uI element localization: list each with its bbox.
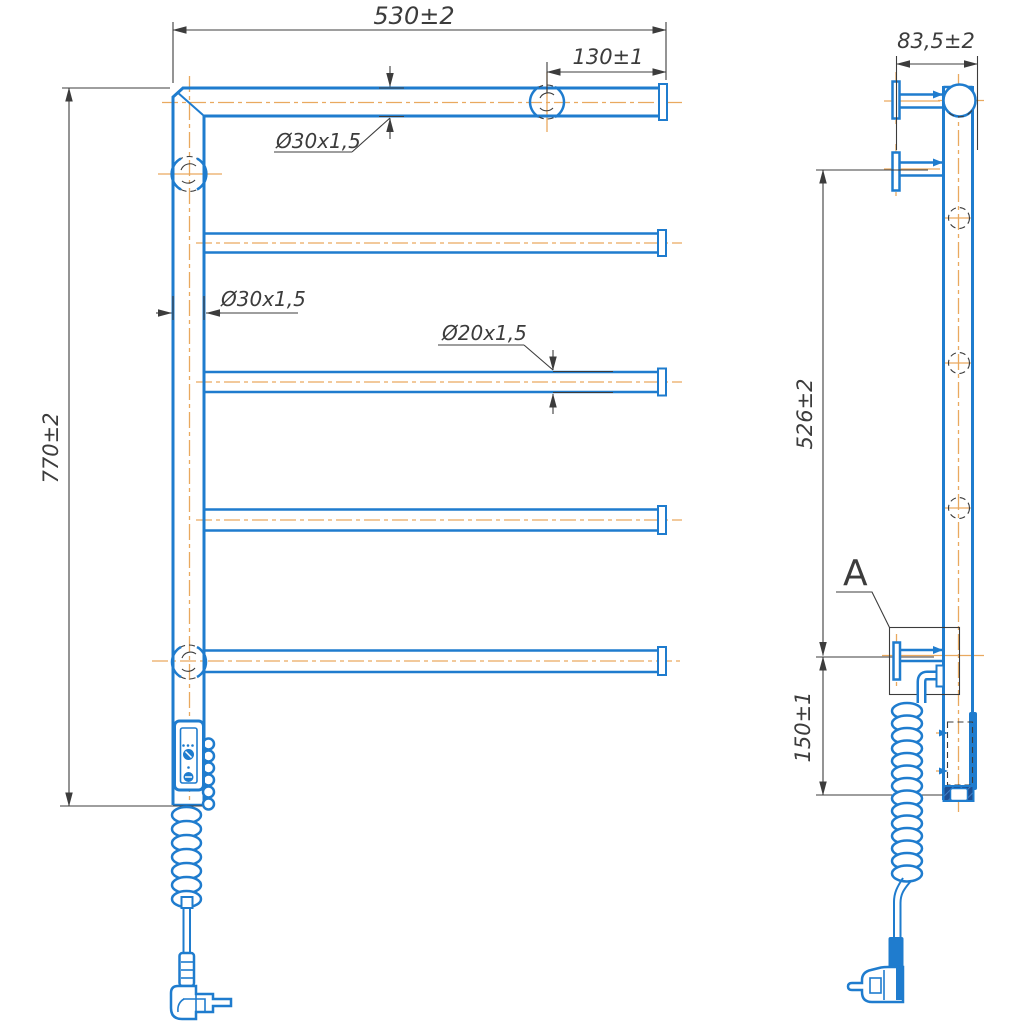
wall-bracket-top	[893, 82, 944, 119]
frame-tube	[173, 84, 667, 805]
tube-20-label: Ø20x1,5	[441, 321, 527, 345]
top-elbow-circle	[944, 85, 976, 117]
top-tube-end-cap	[659, 84, 667, 120]
fastener-arrow-icon	[933, 91, 943, 99]
plug-side	[848, 967, 903, 1002]
wall-bracket-second	[893, 153, 944, 191]
towel-rail-drawing: 530±2 130±1 770±2 Ø30x1,5	[0, 0, 1024, 1024]
front-view: 530±2 130±1 770±2 Ø30x1,5	[39, 2, 682, 1019]
plug-front	[171, 986, 231, 1019]
label-tube-30-top: Ø30x1,5	[274, 66, 404, 153]
fastener-arrow-icon	[933, 646, 943, 654]
label-tube-20: Ø20x1,5	[438, 321, 613, 414]
tube-30-top-label: Ø30x1,5	[275, 129, 361, 153]
dimension-130: 130±1	[547, 45, 666, 93]
power-cord-front	[172, 807, 201, 986]
dim-130-label: 130±1	[572, 45, 643, 69]
dim-530-label: 530±2	[373, 2, 454, 30]
label-tube-30-side: Ø30x1,5	[156, 287, 306, 320]
dim-526-label: 526±2	[793, 378, 817, 449]
dim-770-label: 770±2	[39, 412, 63, 483]
indicator-dot	[182, 744, 185, 747]
controller-front	[175, 721, 204, 790]
side-view: 83,5±2 526±2 150±1 A	[791, 29, 984, 1002]
dim-83-5-label: 83,5±2	[897, 29, 975, 53]
dimension-530: 530±2	[173, 2, 666, 83]
tube-bottom-cap	[944, 786, 974, 801]
drawing-canvas: 530±2 130±1 770±2 Ø30x1,5	[0, 0, 1024, 1024]
cord-ferrule	[889, 937, 904, 968]
power-cord-side	[889, 703, 923, 968]
detail-a-label: A	[843, 553, 868, 594]
fastener-arrow-icon	[933, 159, 943, 167]
tube-30-side-label: Ø30x1,5	[220, 287, 306, 311]
dim-150-label: 150±1	[791, 691, 815, 762]
cord-elbow-side	[922, 666, 944, 704]
dimension-770: 770±2	[39, 88, 204, 806]
front-centerlines	[152, 72, 682, 814]
